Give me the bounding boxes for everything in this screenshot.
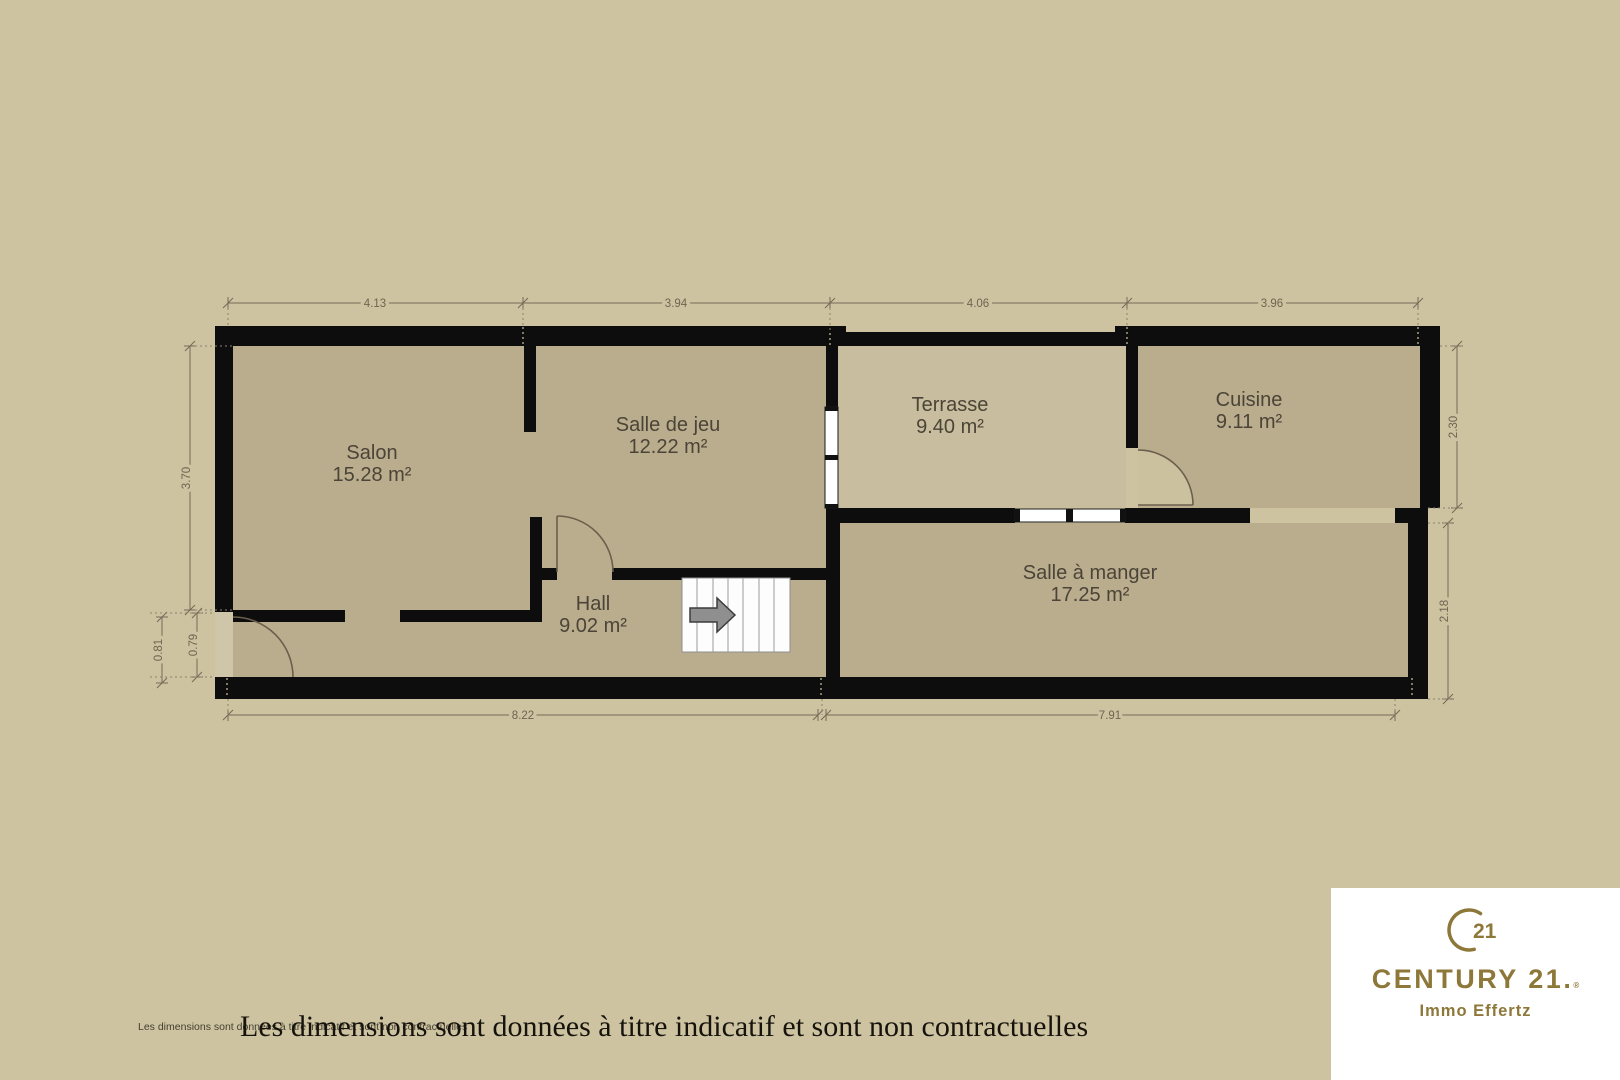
dimension-label: 4.06 [967,298,989,310]
wall-jeu-terrasse-upper [826,346,838,407]
wall-top-terrasse [838,332,1128,346]
wall-right-salle-a-manger [1408,523,1428,677]
dimension-label: 0.79 [188,634,200,656]
dimension-label: 2.18 [1439,600,1451,622]
svg-text:15.28 m²: 15.28 m² [333,464,412,486]
wall-top-cuisine [1115,326,1440,346]
dimension-label: 0.81 [153,639,165,661]
wall-salon-jeu-upper [524,346,536,432]
svg-text:9.02 m²: 9.02 m² [559,615,627,637]
wall-salon-bottom-a [233,610,345,622]
stairs [682,578,790,652]
dimension-label: 2.30 [1448,416,1460,438]
wall-hall-door-stub [542,568,557,580]
disclaimer-large: Les dimensions sont données à titre indi… [240,1010,1088,1044]
svg-text:Terrasse: Terrasse [912,394,989,416]
dimension-label: 3.70 [181,467,193,489]
wall-step-stub [1395,508,1428,523]
wall-salon-bottom-b [400,610,542,622]
registered-mark: ® [1573,981,1579,990]
brand-subtitle: Immo Effertz [1420,1002,1532,1021]
svg-text:Salle de jeu: Salle de jeu [616,414,721,436]
room-label-cuisine: Cuisine 9.11 m² [1216,389,1283,433]
room-label-salle-de-jeu: Salle de jeu 12.22 m² [616,414,721,458]
svg-text:Hall: Hall [576,593,610,615]
wall-terrasse-cuisine [1126,346,1138,448]
dimension-label: 8.22 [512,710,534,722]
svg-text:Cuisine: Cuisine [1216,389,1283,411]
window-terrasse-salle-a-manger [1015,509,1125,522]
floor-plan-page: 4.13 3.94 4.06 3.96 8.22 7.91 3.70 0.81 … [0,0,1620,1080]
svg-text:Salon: Salon [346,442,397,464]
dimension-label: 3.94 [665,298,688,310]
entrance-threshold [215,612,233,677]
dimension-label: 3.96 [1261,298,1283,310]
svg-text:9.40 m²: 9.40 m² [916,416,984,438]
wall-right-cuisine [1420,346,1440,508]
svg-text:9.11 m²: 9.11 m² [1216,411,1283,433]
wall-hall-salle-a-manger [826,523,840,677]
svg-text:17.25 m²: 17.25 m² [1051,584,1130,606]
dimension-label: 7.91 [1099,710,1121,722]
seal-number: 21 [1473,920,1497,943]
svg-text:Salle à manger: Salle à manger [1023,562,1158,584]
wall-top-main [215,326,846,346]
century21-seal-icon: 21 [1441,904,1511,958]
svg-text:12.22 m²: 12.22 m² [629,436,708,458]
wall-salon-jeu-lower [530,517,542,622]
window-jeu-terrasse [825,407,838,508]
dimension-label: 4.13 [364,298,386,310]
brand-panel: 21 CENTURY 21.® Immo Effertz [1331,888,1620,1080]
room-label-terrasse: Terrasse 9.40 m² [912,394,989,438]
wall-cuisine-salle-a-manger [1125,508,1250,523]
brand-name: CENTURY 21.® [1372,964,1579,995]
wall-left [215,326,233,612]
wall-terrasse-bottom [826,508,1015,523]
